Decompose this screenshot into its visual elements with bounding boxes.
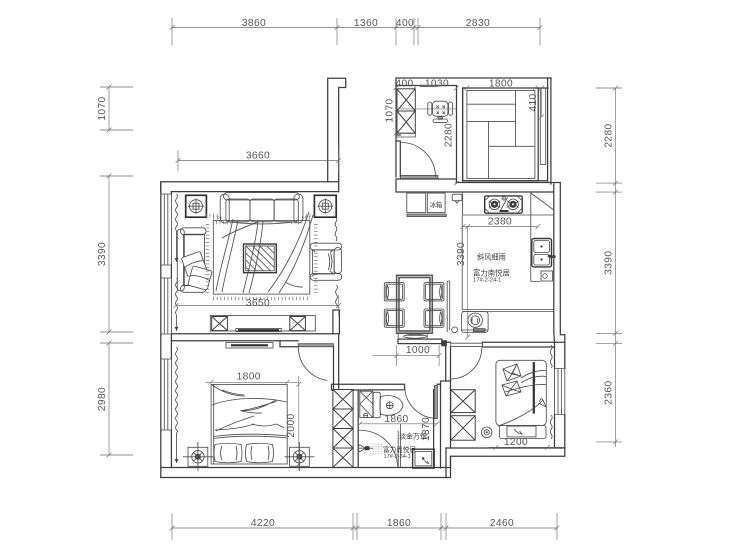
svg-text:1070: 1070 [97,96,108,120]
svg-text:2280: 2280 [604,123,615,147]
svg-text:2280: 2280 [444,123,455,147]
svg-text:3390: 3390 [97,242,108,266]
svg-text:2460: 2460 [490,518,514,529]
svg-text:2380: 2380 [488,217,512,228]
svg-text:富力南悦居: 富力南悦居 [473,269,510,278]
svg-text:1870: 1870 [421,417,432,441]
svg-text:1800: 1800 [237,371,261,382]
svg-text:3390: 3390 [456,242,467,266]
svg-text:1000: 1000 [406,345,430,356]
svg-text:410: 410 [528,93,539,111]
svg-text:400: 400 [396,18,414,29]
svg-text:3390: 3390 [604,251,615,275]
svg-text:1030: 1030 [425,78,449,89]
svg-text:斜风细雨: 斜风细雨 [477,253,506,262]
svg-text:2830: 2830 [466,18,490,29]
svg-text:1860: 1860 [387,518,411,529]
svg-text:富力尚悦居: 富力尚悦居 [383,445,416,454]
svg-text:17#-2-24-1: 17#-2-24-1 [473,278,501,284]
svg-text:3860: 3860 [242,18,266,29]
svg-text:1200: 1200 [504,437,528,448]
svg-text:1800: 1800 [489,78,513,89]
svg-text:3660: 3660 [246,151,270,162]
svg-text:1360: 1360 [354,18,378,29]
svg-text:400: 400 [395,78,413,89]
svg-text:2360: 2360 [604,380,615,404]
svg-text:冰箱: 冰箱 [430,200,443,209]
svg-text:1070: 1070 [385,98,396,122]
svg-text:4220: 4220 [251,518,275,529]
svg-text:1860: 1860 [384,414,408,425]
svg-text:2980: 2980 [97,387,108,411]
svg-text:2000: 2000 [286,413,297,437]
svg-text:17#-2-34-1: 17#-2-34-1 [384,454,411,460]
